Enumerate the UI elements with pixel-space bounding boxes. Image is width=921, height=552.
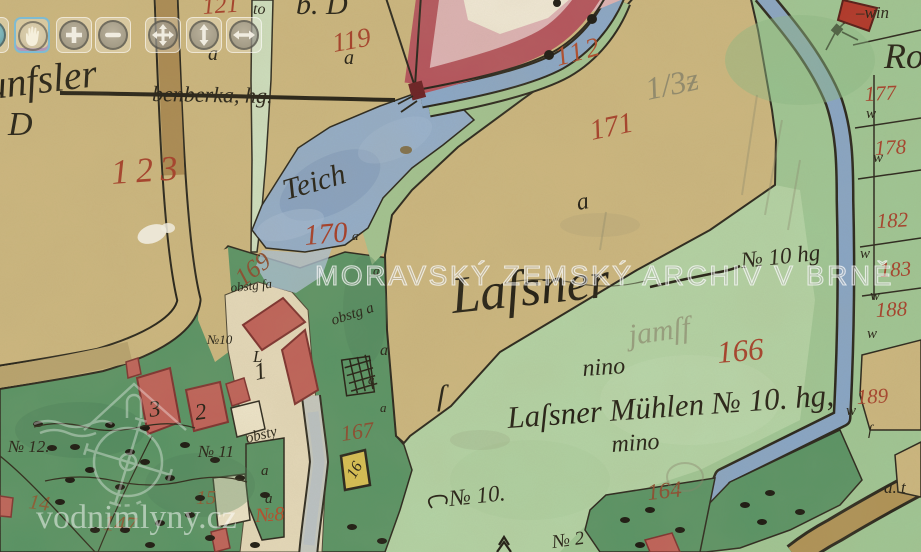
svg-text:vodnimlyny.cz: vodnimlyny.cz bbox=[36, 499, 237, 536]
svg-text:MORAVSKÝ ZEMSKÝ ARCHIV V BRNĚ: MORAVSKÝ ZEMSKÝ ARCHIV V BRNĚ bbox=[315, 260, 894, 291]
